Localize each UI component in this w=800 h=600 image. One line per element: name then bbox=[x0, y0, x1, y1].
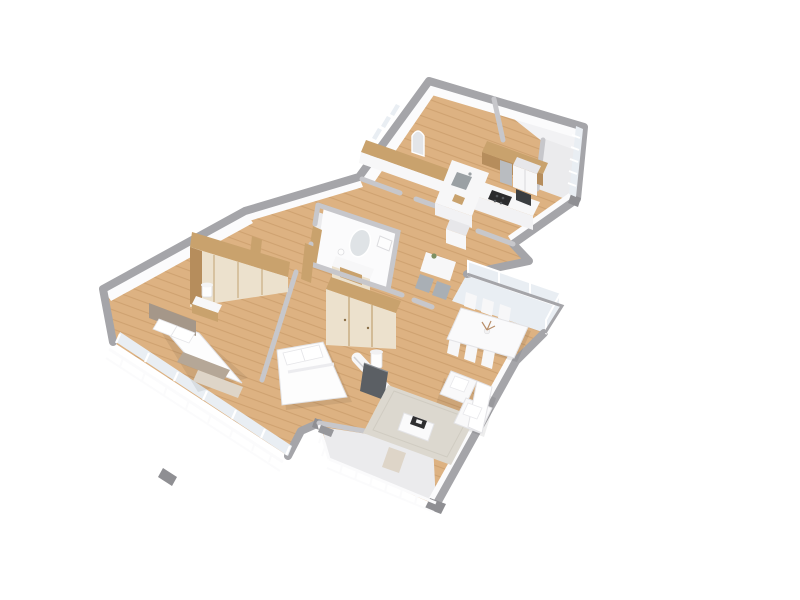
floor-lamp-shade bbox=[370, 349, 383, 354]
table-lamp-shade bbox=[201, 283, 213, 288]
floorplan-page bbox=[0, 0, 800, 600]
potted-plant bbox=[431, 253, 436, 258]
arched-mirror bbox=[412, 131, 424, 156]
vanity-lamp bbox=[338, 249, 344, 255]
floorplan-3d-render bbox=[0, 0, 800, 600]
range-hood bbox=[500, 160, 512, 186]
faucet bbox=[468, 172, 471, 175]
